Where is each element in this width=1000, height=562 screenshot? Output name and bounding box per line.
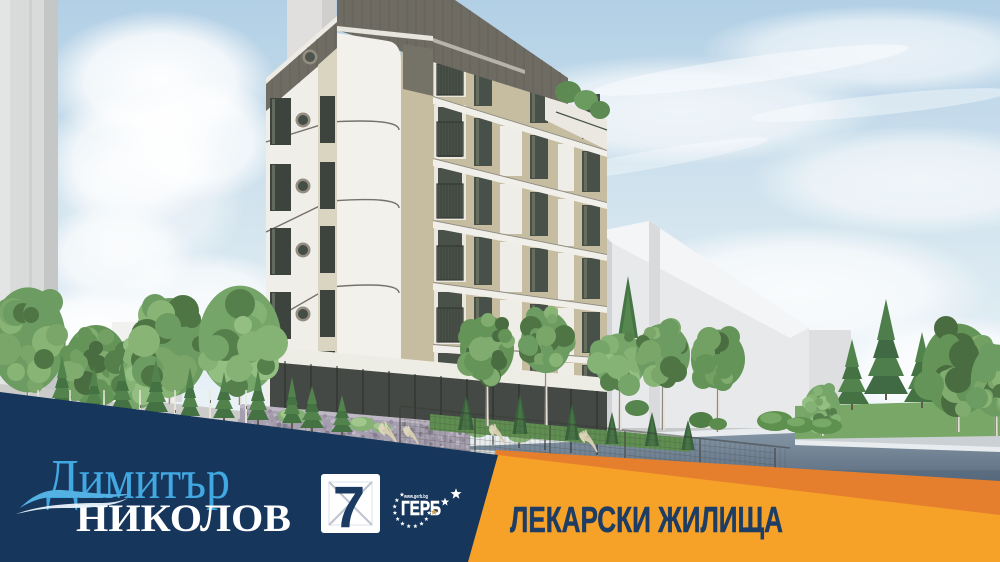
svg-text:ГЕРБ: ГЕРБ [401,498,441,520]
svg-text:7: 7 [333,475,365,540]
svg-text:ЛЕКАРСКИ ЖИЛИЩА: ЛЕКАРСКИ ЖИЛИЩА [510,499,783,540]
